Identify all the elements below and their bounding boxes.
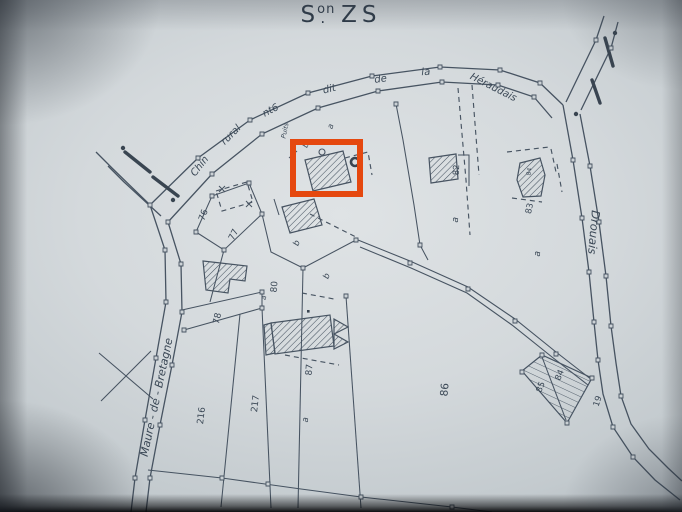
buildings [203, 151, 592, 423]
road-dot [574, 112, 578, 116]
parcel-label-80: 80 [270, 280, 281, 293]
subdivision-label-b-mid: b [291, 239, 302, 248]
road-dot [613, 31, 617, 35]
boundary-parcel-a-left [396, 104, 428, 260]
dashed-building-76 [216, 182, 253, 211]
dashed-lane-a [458, 88, 470, 235]
well-label: Puits [279, 121, 290, 139]
section-title-name: ZS [341, 2, 381, 28]
road-dot [171, 198, 175, 202]
map-drawing: Chin rural nt6 dit de la Héraudais Maure… [0, 0, 682, 512]
parcel-label-76: 76 [197, 208, 210, 222]
subdivision-label-a-top: a [326, 123, 336, 130]
road-label-chemin-part-4: de [374, 73, 388, 86]
dashed-lane-b [472, 85, 479, 175]
section-title-prefix: S [301, 2, 318, 28]
subdivision-label-a-bottom: a [301, 417, 311, 423]
point-square [307, 310, 310, 313]
parcel-label-217: 217 [250, 395, 262, 413]
building-84 [517, 158, 545, 197]
road-label-chemin-part-1: rural [219, 123, 244, 148]
road-dot [121, 146, 125, 150]
boundary-87-86 [346, 296, 361, 508]
parcel-label-82: 82 [452, 164, 462, 175]
road-tick [153, 177, 178, 196]
road-fork-arm-a [96, 152, 148, 203]
parcel-label-78: 78 [212, 312, 224, 326]
x-tick-marks [219, 186, 252, 207]
building-below-highlight [282, 199, 322, 233]
talus-hachured-area [522, 355, 592, 423]
road-topright-arm-a [566, 16, 604, 102]
dashed-above-b4 [302, 293, 334, 299]
section-title-dot: . [320, 9, 327, 27]
parcel-label-83: 83 [524, 202, 536, 215]
parcel-label-216: 216 [196, 406, 208, 425]
subdivision-label-b-low: b [321, 272, 332, 281]
road-label-chemin-part-3: dit [322, 82, 338, 96]
subdivision-label-a-mid: a [451, 217, 461, 223]
parcel-label-86: 86 [438, 382, 451, 397]
parcel-label-87: 87 [305, 364, 316, 376]
dashed-b6-right2 [557, 164, 562, 192]
road-tick [605, 38, 613, 66]
building-west [203, 261, 247, 293]
subdivision-label-a-right: a [533, 251, 543, 257]
road-label-drouais: Drouais [585, 210, 603, 255]
building-center-gable-1 [334, 319, 348, 334]
road-tick [592, 80, 600, 103]
boundary-v-junction [303, 240, 356, 268]
parcel-label-77: 77 [227, 228, 241, 243]
road-label-chemin-part-5: la [421, 67, 431, 79]
road-fork-arm-b [108, 166, 161, 216]
dashed-b6-top [507, 147, 549, 152]
cross-mark-216 [99, 351, 153, 401]
road-label-chemin-part-2: nt6 [261, 102, 281, 120]
building-center-gable-2 [334, 334, 348, 349]
l-mark-near-b2 [274, 199, 279, 215]
road-drouais-east [580, 114, 682, 481]
highlight-box[interactable] [290, 139, 363, 197]
subdivision-label-a-small: a [260, 295, 269, 301]
boundary-80-87 [298, 268, 303, 508]
parcel-label-19: 19 [592, 395, 605, 408]
road-label-chemin-part-0: Chin [189, 154, 211, 178]
parcel-label-84-building: 84 [525, 167, 533, 176]
road-label-chemin-part-6: Héraudais [468, 70, 519, 104]
section-title: Son.ZS [0, 2, 682, 28]
boundary-bottom-edge [148, 470, 492, 512]
strip-78-upper [182, 292, 262, 310]
dashed-b6-right1 [551, 149, 556, 172]
road-tick [125, 152, 150, 172]
cadastral-map-photo: Son.ZS [0, 0, 682, 512]
dashed-below-b4 [285, 355, 339, 365]
dashed-b6-bottom [512, 198, 542, 202]
building-center [271, 315, 334, 354]
road-drouais-west [563, 105, 680, 500]
